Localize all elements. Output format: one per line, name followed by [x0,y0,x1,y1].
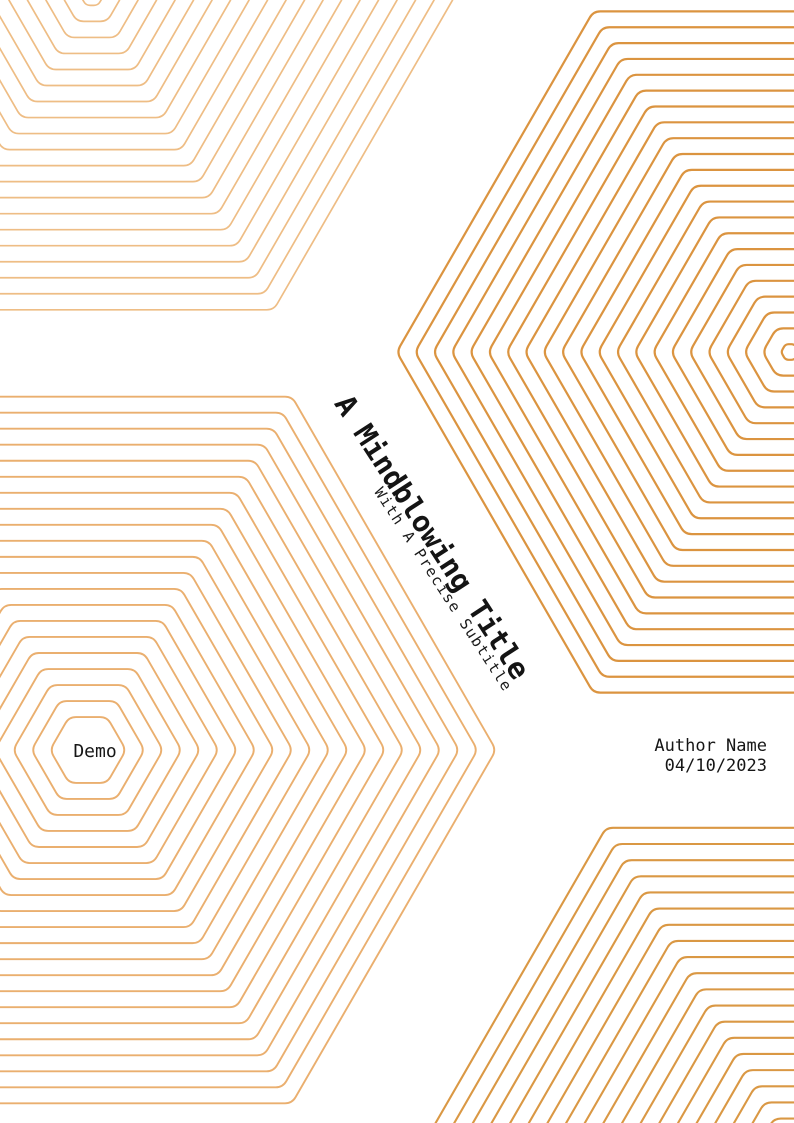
author-block: Author Name 04/10/2023 [654,736,767,776]
publication-date: 04/10/2023 [654,756,767,776]
demo-label: Demo [73,741,116,763]
hex-rings-bottom-right [407,828,794,1123]
hex-rings-top-left [0,0,454,310]
document-title-page: A Mindblowing Title With A Precise Subti… [0,0,794,1123]
author-name: Author Name [654,736,767,756]
hexagon-pattern-background [0,0,794,1123]
